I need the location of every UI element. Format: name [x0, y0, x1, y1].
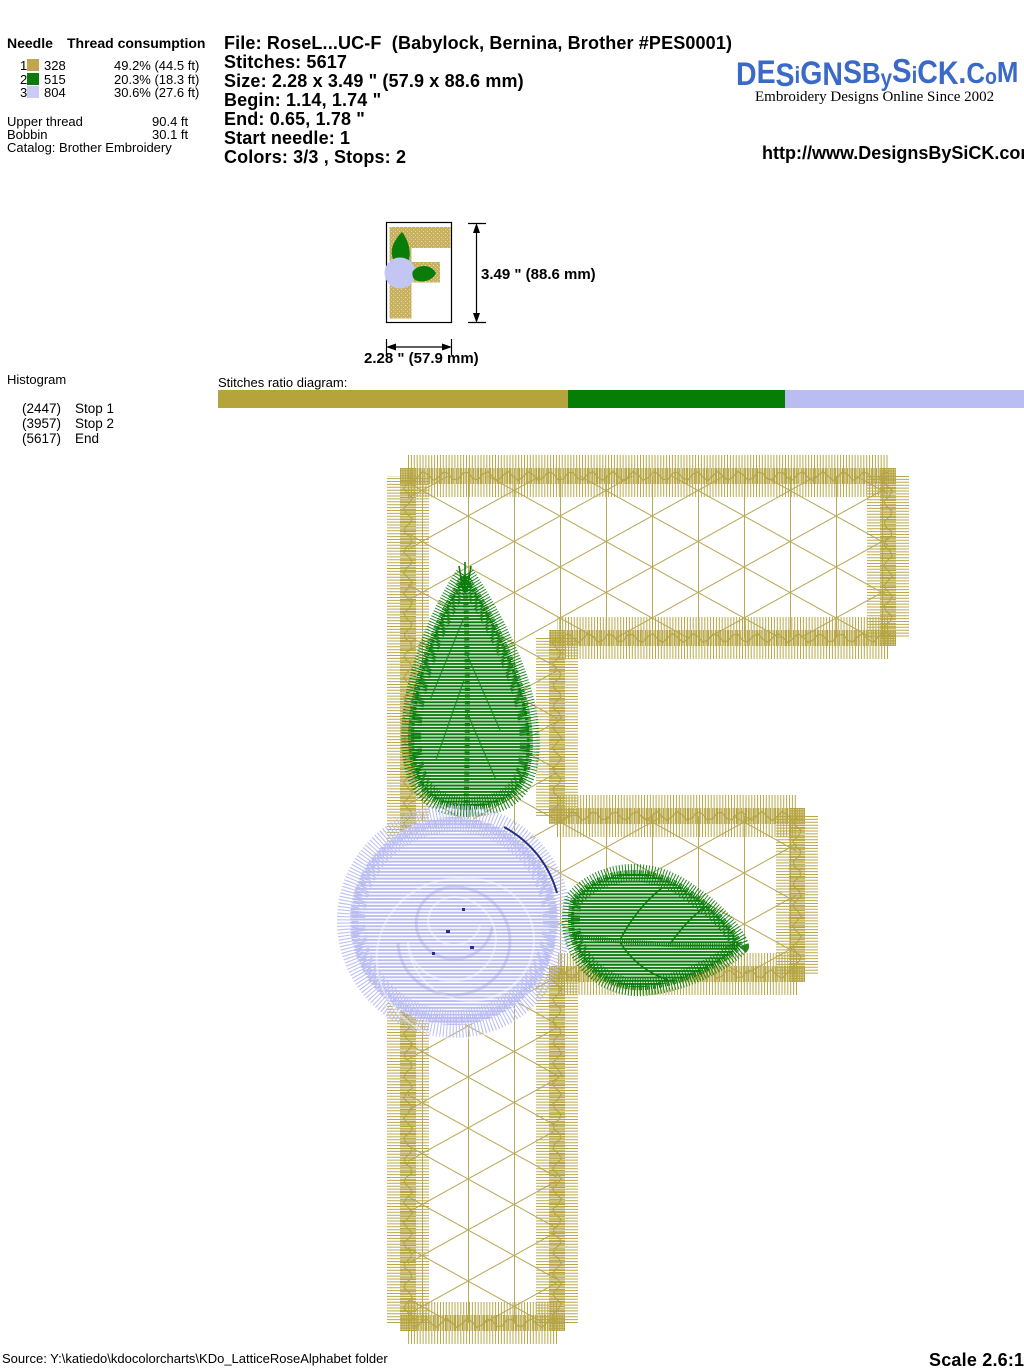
svg-text:3.49 " (88.6 mm): 3.49 " (88.6 mm): [481, 266, 596, 283]
svg-text:2.28 " (57.9 mm): 2.28 " (57.9 mm): [364, 350, 479, 367]
